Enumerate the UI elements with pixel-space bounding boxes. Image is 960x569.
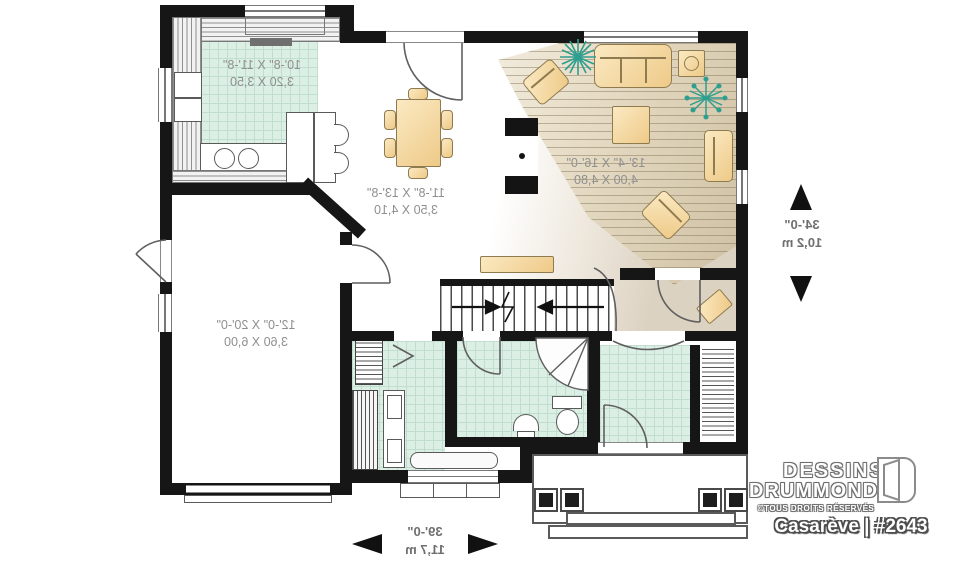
brand-name-line2: DRUMMOND [749, 480, 875, 503]
garage-dimensions-label: 12'-0" X 20'-0" 3,60 X 6,00 [196, 317, 316, 351]
door-arc [136, 240, 166, 254]
archway-curve [613, 341, 684, 350]
door-arc [404, 43, 462, 100]
stair-direction-arrows [452, 292, 604, 322]
door-arc [604, 405, 647, 448]
rights-text: ©TOUS DROITS RÉSERVÉS [753, 504, 879, 513]
door-arc [463, 337, 500, 374]
door-leaf [136, 254, 166, 282]
folding-door [393, 345, 413, 367]
stair-rail-curve [594, 268, 616, 331]
dimension-arrow-icon [790, 276, 812, 302]
plan-model-label: Casarève | #2643 [771, 516, 931, 538]
floor-plan-canvas: 10'-8" X 11'-8" 3,20 X 3,50 11'-8" X 13'… [0, 0, 960, 569]
dimension-arrow-icon [352, 534, 382, 554]
door-logo-icon [873, 454, 919, 508]
door-arc [658, 280, 700, 322]
stair-break-mark [502, 292, 513, 322]
living-dimensions-label: 13'-4" X 16'-0" 4,00 X 4,80 [548, 155, 664, 189]
door-arc [352, 245, 390, 283]
plant-icon [560, 39, 596, 75]
dining-dimensions-label: 11'-8" X 13'-8" 3,50 X 4,10 [346, 185, 466, 219]
dimension-arrow-icon [790, 184, 812, 210]
branding-block: DESSINS DRUMMOND ©TOUS DROITS RÉSERVÉS C… [745, 452, 957, 552]
plant-icon [685, 77, 727, 119]
kitchen-dimensions-label: 10'-8" X 11'-8" 3,20 X 3,50 [202, 57, 322, 91]
dimension-arrow-icon [468, 534, 498, 554]
width-dimension-label: 39'-0" 11,7 m [382, 523, 468, 559]
depth-dimension-label: 34'-0" 10,2 m [752, 216, 852, 252]
winder-stairs [536, 338, 588, 390]
